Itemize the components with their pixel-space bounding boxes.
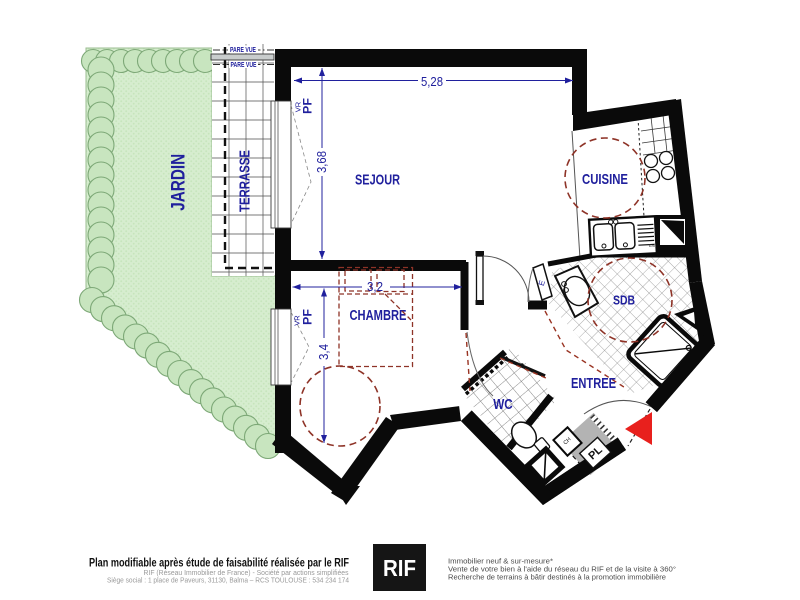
svg-text:RIF (Réseau Immobilier de Fran: RIF (Réseau Immobilier de France) - Soci…	[144, 570, 349, 577]
svg-text:Plan modifiable après étude de: Plan modifiable après étude de faisabili…	[89, 558, 349, 570]
svg-text:SDB: SDB	[613, 292, 635, 307]
svg-text:PARE VUE: PARE VUE	[231, 62, 257, 69]
svg-text:3,4: 3,4	[317, 344, 331, 360]
svg-text:JARDIN: JARDIN	[168, 154, 189, 211]
svg-text:WC: WC	[493, 397, 513, 413]
svg-text:Recherche de terrains à bâtir: Recherche de terrains à bâtir destinés à…	[448, 573, 666, 582]
svg-text:3,68: 3,68	[315, 151, 329, 173]
svg-text:5,28: 5,28	[421, 75, 443, 89]
svg-text:SEJOUR: SEJOUR	[355, 171, 400, 188]
svg-text:CUISINE: CUISINE	[582, 171, 628, 188]
svg-text:RIF: RIF	[383, 555, 416, 581]
svg-text:PF: PF	[301, 309, 315, 325]
svg-text:VR: VR	[293, 315, 302, 326]
svg-text:3,2: 3,2	[367, 280, 383, 294]
svg-text:Siège social : 1 place de Pave: Siège social : 1 place de Paveurs, 31130…	[107, 578, 349, 585]
svg-text:PF: PF	[301, 98, 315, 114]
svg-text:ENTREE: ENTREE	[571, 375, 616, 392]
svg-text:PARE VUE: PARE VUE	[230, 47, 256, 54]
svg-text:VR: VR	[294, 101, 303, 112]
svg-text:CHAMBRE: CHAMBRE	[350, 308, 407, 324]
svg-text:TERRASSE: TERRASSE	[237, 150, 254, 212]
